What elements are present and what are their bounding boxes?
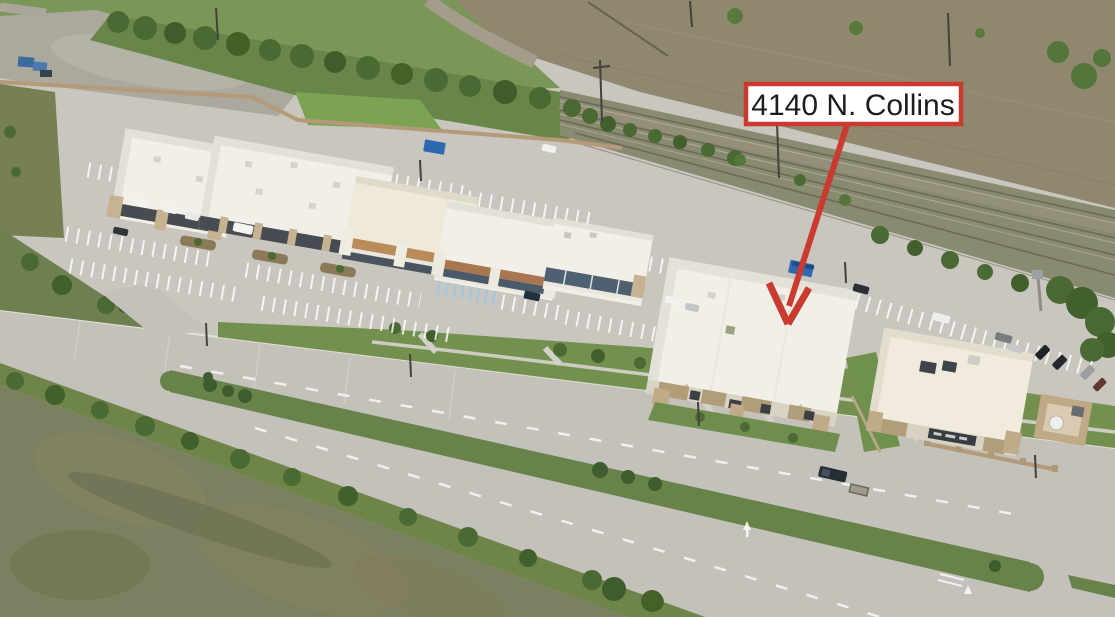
address-callout-label: 4140 N. Collins (751, 89, 954, 122)
entrance-structure (1034, 394, 1093, 446)
address-callout: 4140 N. Collins (746, 84, 961, 124)
aerial-photo-scene: 4140 N. Collins (0, 0, 1115, 617)
aerial-photo: 4140 N. Collins (0, 0, 1115, 617)
